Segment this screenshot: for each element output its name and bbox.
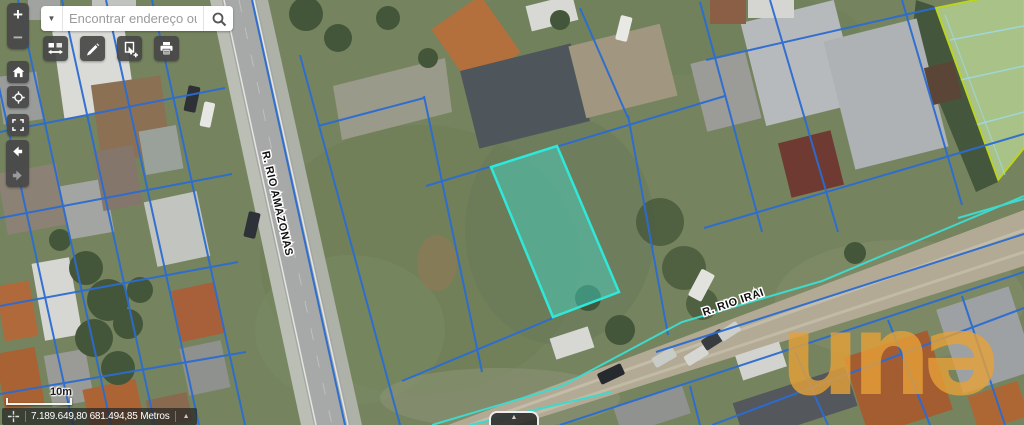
zoom-in-button[interactable]: + xyxy=(7,3,29,26)
coordinate-bar: 7.189.649,80 681.494,85 Metros ▲ xyxy=(2,408,197,425)
search-input[interactable] xyxy=(63,6,203,31)
locate-me-button[interactable] xyxy=(7,86,29,108)
cursor-select-plus-icon xyxy=(121,40,139,58)
map-canvas[interactable]: R. RIO AMAZONAS R. RIO IRAI unə xyxy=(0,0,1024,425)
pencil-icon xyxy=(84,40,101,57)
caret-down-icon: ▼ xyxy=(48,14,56,23)
arrow-right-icon xyxy=(13,170,22,180)
select-features-button[interactable] xyxy=(117,36,142,61)
map-viewer-window: R. RIO AMAZONAS R. RIO IRAI unə + − ▼ xyxy=(0,0,1024,425)
bottom-panel-toggle[interactable]: ▲ xyxy=(489,411,539,425)
search-bar: ▼ xyxy=(41,6,233,31)
draw-measure-button[interactable] xyxy=(80,36,105,61)
map-toolbar xyxy=(43,36,179,61)
search-button[interactable] xyxy=(203,6,233,31)
expand-corners-icon xyxy=(10,117,26,133)
crosshair-circle-icon xyxy=(10,89,27,106)
previous-extent-button[interactable] xyxy=(9,143,26,160)
arrow-left-icon xyxy=(13,147,22,157)
chevron-up-icon: ▲ xyxy=(511,413,518,423)
scale-bar xyxy=(6,398,72,405)
default-extent-button[interactable] xyxy=(7,114,29,136)
next-extent-button[interactable] xyxy=(9,167,26,184)
print-button[interactable] xyxy=(154,36,179,61)
divider xyxy=(25,411,26,422)
extent-history-control xyxy=(6,140,29,187)
zoom-control: + − xyxy=(7,3,29,49)
una-watermark-logo: unə xyxy=(780,291,994,421)
home-extent-button[interactable] xyxy=(7,61,29,83)
zoom-out-button[interactable]: − xyxy=(7,26,29,49)
house-icon xyxy=(10,64,27,81)
scale-label: 10m xyxy=(50,386,72,398)
coordinate-readout: 7.189.649,80 681.494,85 Metros xyxy=(31,411,170,422)
coordinate-collapse-button[interactable]: ▲ xyxy=(181,413,192,420)
coordinate-capture-icon[interactable] xyxy=(7,410,20,423)
printer-icon xyxy=(158,40,175,57)
magnifier-icon xyxy=(211,11,227,27)
search-source-dropdown[interactable]: ▼ xyxy=(41,6,63,31)
swipe-squares-icon xyxy=(47,40,64,57)
divider xyxy=(175,411,176,422)
basemap-swipe-button[interactable] xyxy=(43,36,68,61)
